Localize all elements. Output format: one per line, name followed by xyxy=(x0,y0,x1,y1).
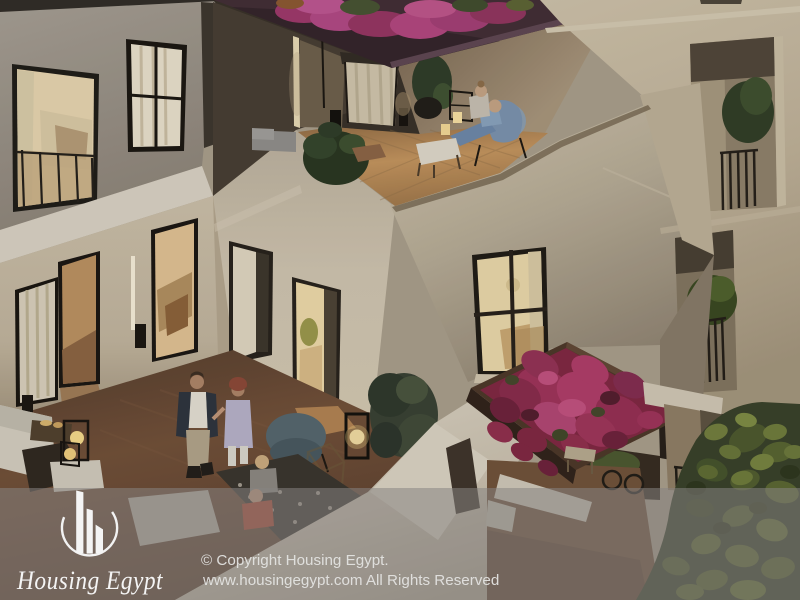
svg-text:www.housingegypt.com All Right: www.housingegypt.com All Rights Reserved xyxy=(202,572,499,589)
svg-text:Housing Egypt: Housing Egypt xyxy=(16,566,163,595)
svg-text:© Copyright Housing Egypt.: © Copyright Housing Egypt. xyxy=(201,552,389,569)
